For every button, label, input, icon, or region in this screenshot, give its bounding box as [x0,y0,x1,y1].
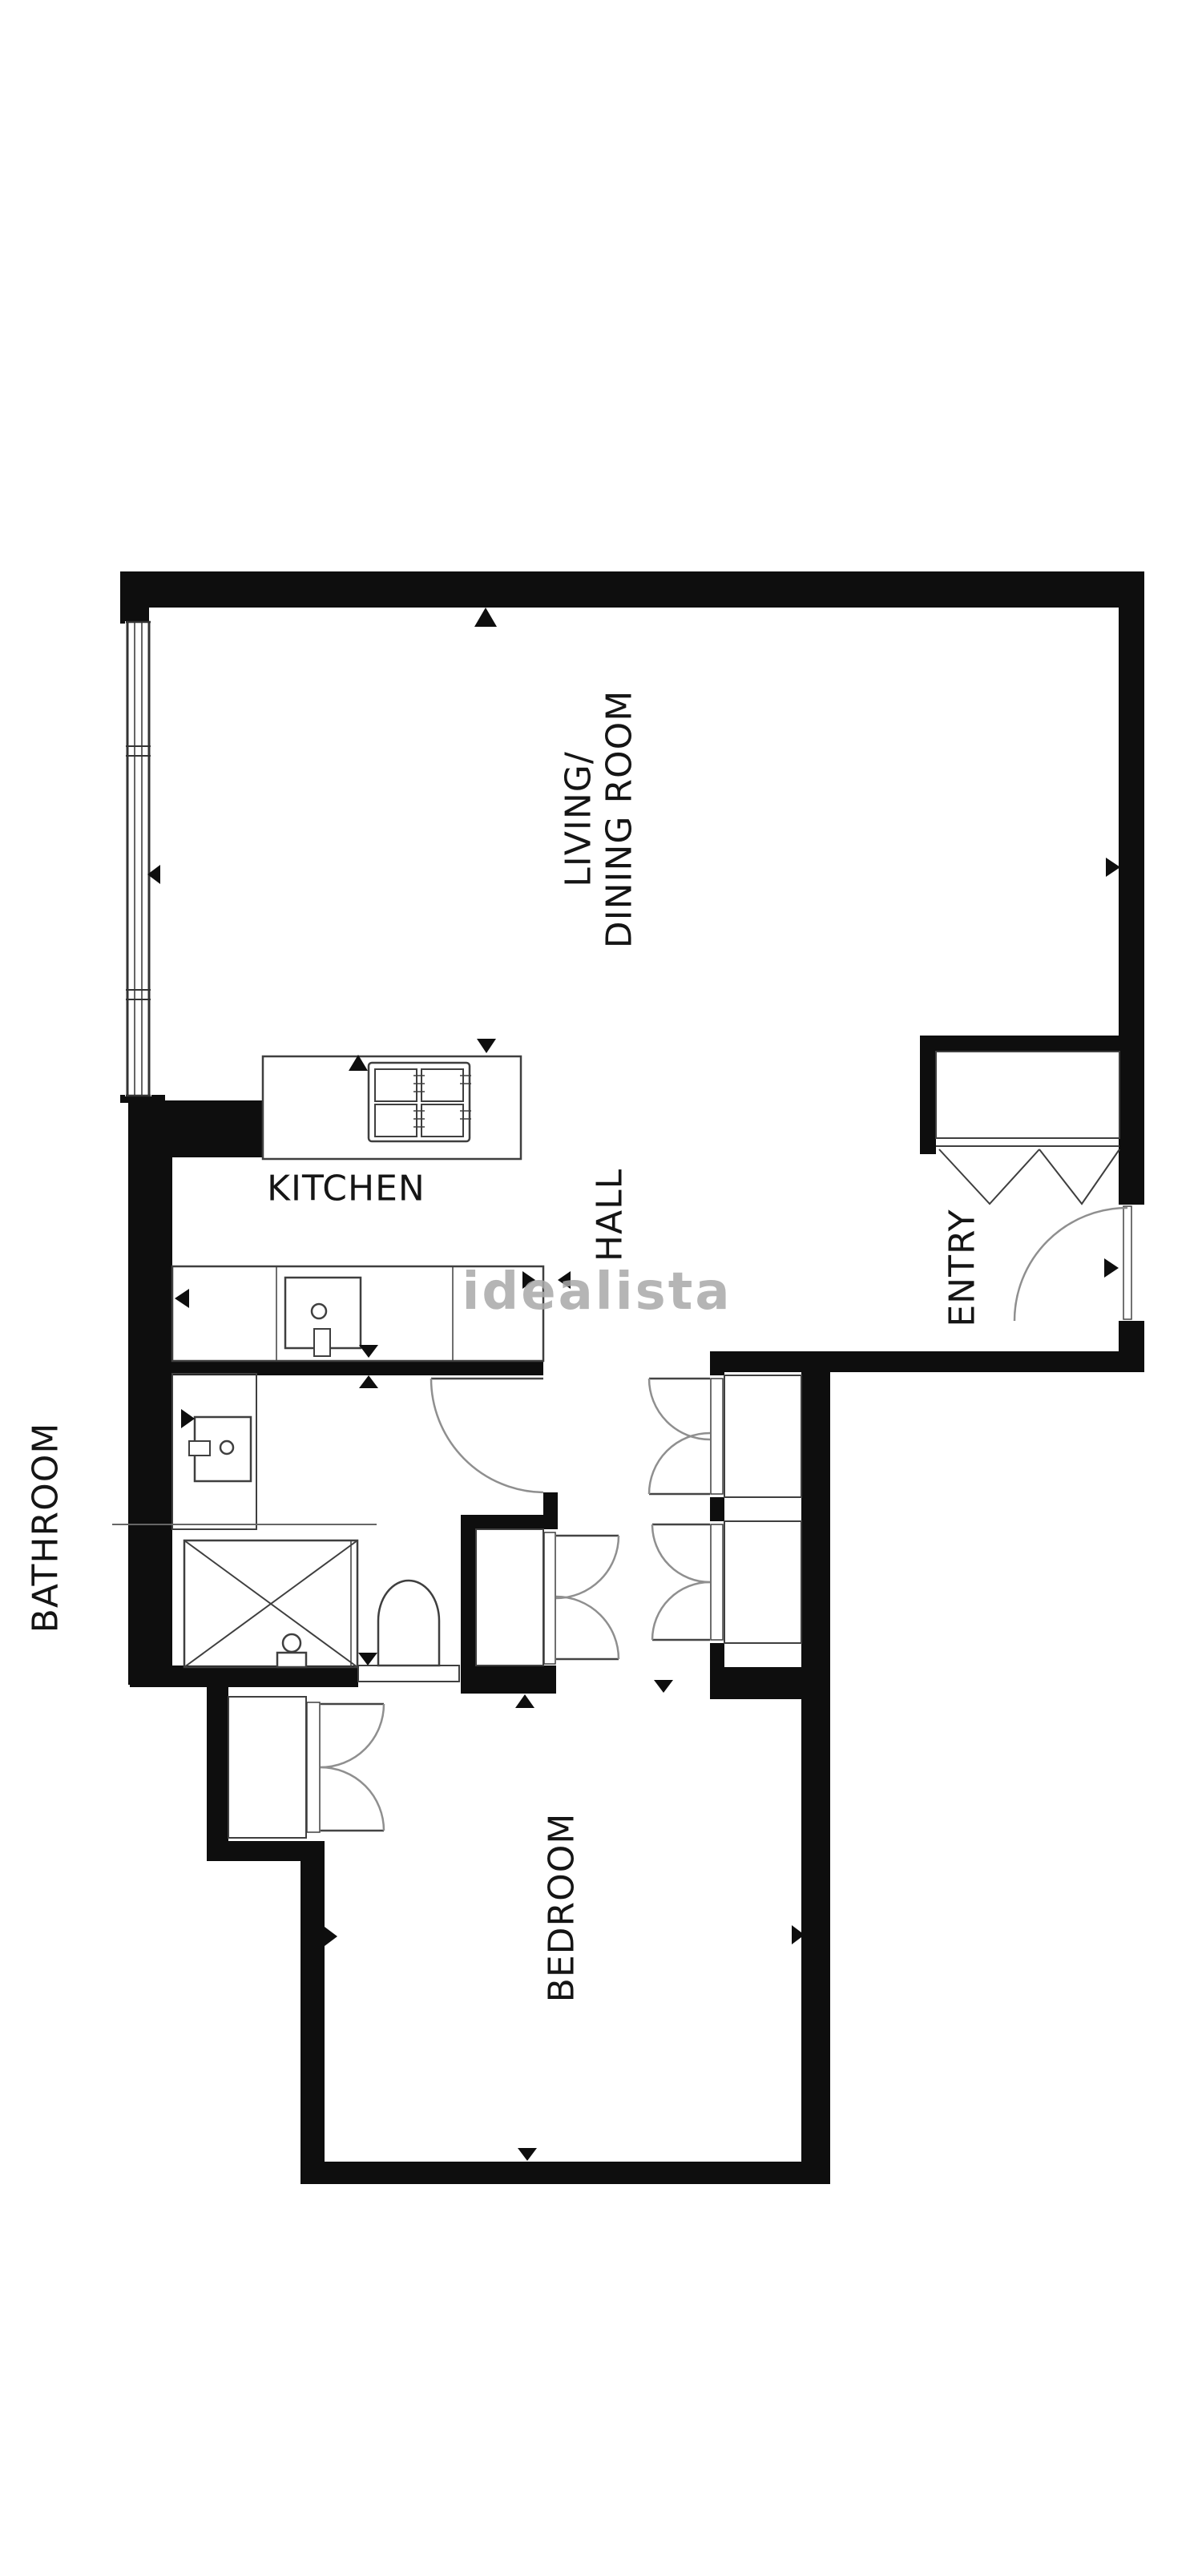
label-kitchen: KITCHEN [267,1169,426,1210]
entry-door [1014,1206,1131,1321]
label-hall: HALL [591,1169,631,1262]
entry-closet [936,1052,1119,1204]
label-bedroom: BEDROOM [543,1813,583,2003]
label-living-line1: LIVING/ [559,690,599,949]
bathroom-corner-closet [476,1529,555,1666]
bedroom-closet [228,1697,320,1838]
hall-closet-right-doors [649,1379,710,1640]
bathroom-door [431,1379,543,1492]
label-living-dining-room: LIVING/ DINING ROOM [559,690,639,949]
label-living-line2: DINING ROOM [599,690,640,949]
shower-icon [184,1540,357,1667]
vanity-washbasin-icon [172,1374,256,1529]
idealista-watermark: idealista [462,1262,732,1322]
window-living-left [125,621,151,1096]
label-bathroom: BATHROOM [26,1423,67,1633]
hall-closet-left-doors [556,1536,619,1659]
toilet-icon [358,1581,459,1682]
bedroom-closet-doors [321,1704,384,1831]
stove-icon [369,1063,471,1141]
floorplan-page: idealista LIVING/ DINING ROOM KITCHEN HA… [0,0,1202,2576]
label-entry: ENTRY [943,1209,984,1326]
